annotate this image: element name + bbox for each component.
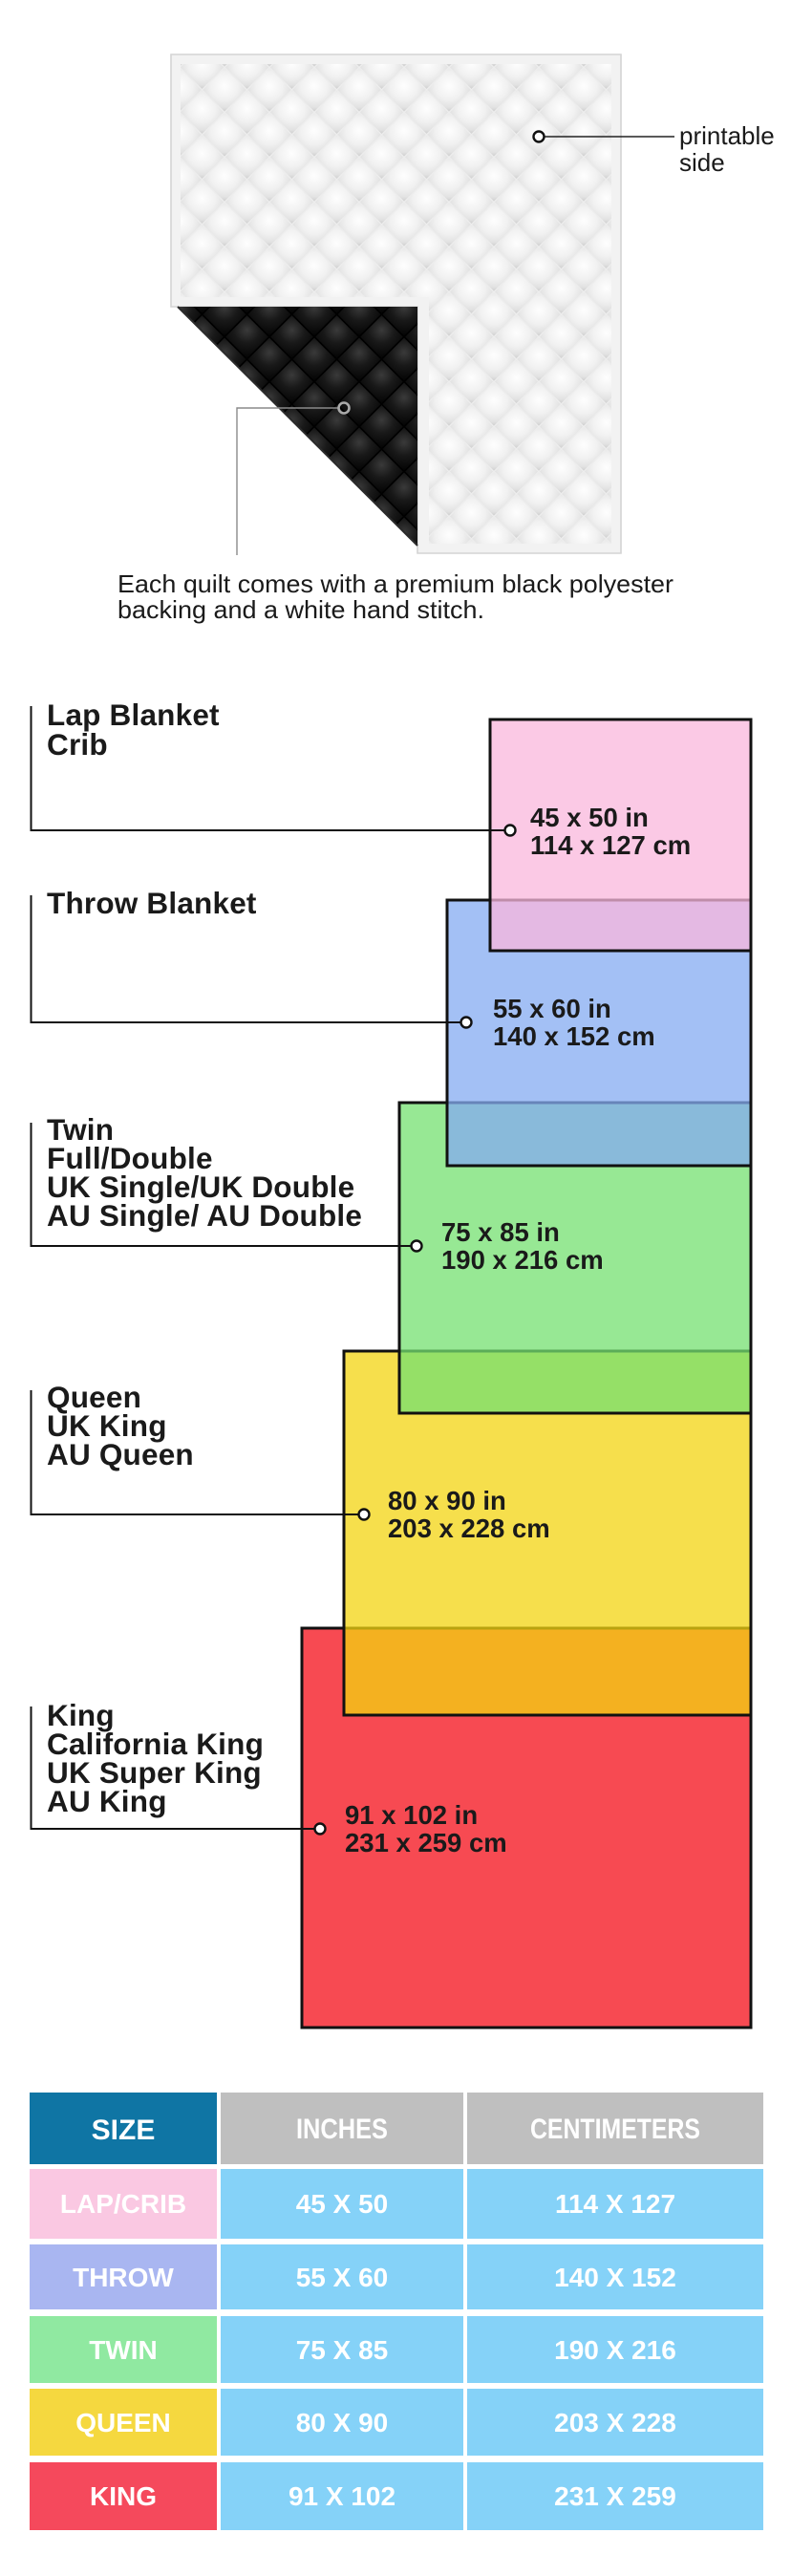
svg-text:114 x 127 cm: 114 x 127 cm xyxy=(530,830,691,860)
svg-text:Crib: Crib xyxy=(47,727,108,762)
svg-text:91 x 102 in: 91 x 102 in xyxy=(345,1800,478,1830)
svg-text:75 X 85: 75 X 85 xyxy=(296,2335,389,2365)
svg-text:80 x 90 in: 80 x 90 in xyxy=(388,1486,506,1515)
svg-text:190 X 216: 190 X 216 xyxy=(554,2335,676,2365)
svg-text:203 X 228: 203 X 228 xyxy=(554,2408,676,2437)
svg-text:55 x 60 in: 55 x 60 in xyxy=(493,994,611,1023)
svg-text:KING: KING xyxy=(90,2481,157,2511)
svg-text:CENTIMETERS: CENTIMETERS xyxy=(530,2114,700,2145)
svg-text:backing and a white hand stitc: backing and a white hand stitch. xyxy=(118,595,484,624)
svg-text:231 X 259: 231 X 259 xyxy=(554,2481,676,2511)
svg-text:190 x 216 cm: 190 x 216 cm xyxy=(441,1245,604,1275)
svg-text:Throw Blanket: Throw Blanket xyxy=(47,886,257,920)
svg-text:INCHES: INCHES xyxy=(296,2114,388,2145)
svg-text:91 X 102: 91 X 102 xyxy=(289,2481,395,2511)
svg-text:231 x 259 cm: 231 x 259 cm xyxy=(345,1828,507,1857)
svg-text:45 x 50 in: 45 x 50 in xyxy=(530,803,649,832)
svg-text:THROW: THROW xyxy=(73,2263,174,2292)
svg-text:203 x 228 cm: 203 x 228 cm xyxy=(388,1513,550,1543)
svg-text:114 X 127: 114 X 127 xyxy=(555,2189,675,2219)
svg-text:55 X 60: 55 X 60 xyxy=(296,2263,389,2292)
svg-text:TWIN: TWIN xyxy=(89,2335,158,2365)
svg-text:AU Queen: AU Queen xyxy=(47,1437,194,1471)
svg-text:side: side xyxy=(679,148,725,177)
svg-text:45 X 50: 45 X 50 xyxy=(296,2189,389,2219)
svg-text:75 x 85 in: 75 x 85 in xyxy=(441,1217,560,1247)
svg-text:SIZE: SIZE xyxy=(92,2114,156,2146)
svg-text:AU King: AU King xyxy=(47,1784,167,1818)
svg-text:Each quilt comes with a premiu: Each quilt comes with a premium black po… xyxy=(118,569,673,598)
svg-text:140 X 152: 140 X 152 xyxy=(554,2263,676,2292)
svg-text:AU Single/ AU Double: AU Single/ AU Double xyxy=(47,1198,362,1233)
svg-text:80 X 90: 80 X 90 xyxy=(296,2408,389,2437)
svg-text:QUEEN: QUEEN xyxy=(75,2408,171,2437)
svg-text:140 x 152 cm: 140 x 152 cm xyxy=(493,1021,655,1051)
svg-text:LAP/CRIB: LAP/CRIB xyxy=(60,2189,186,2219)
svg-text:printable: printable xyxy=(679,121,775,150)
